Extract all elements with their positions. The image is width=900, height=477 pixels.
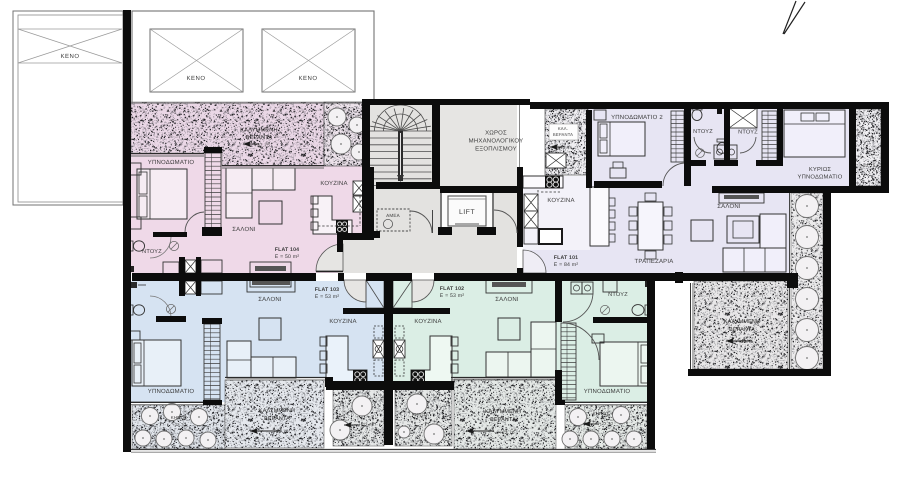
svg-text:ΥΠΝΟΔΩΜΑΤΙΟ: ΥΠΝΟΔΩΜΑΤΙΟ (584, 388, 631, 395)
svg-text:E = 50 m²: E = 50 m² (275, 254, 300, 260)
svg-text:ΝΤΟΥΖ: ΝΤΟΥΖ (608, 292, 628, 298)
svg-text:ΚΟΥΖΙΝΑ: ΚΟΥΖΙΝΑ (547, 197, 574, 204)
svg-text:ΒΕΡΑΝΤΑ: ΒΕΡΑΝΤΑ (264, 416, 290, 422)
svg-text:ΝΤΟΥΖ: ΝΤΟΥΖ (738, 130, 758, 136)
svg-text:LIFT: LIFT (459, 209, 475, 216)
svg-text:ΣΑΛΟΝΙ: ΣΑΛΟΝΙ (258, 296, 282, 303)
svg-text:ΣΑΛΟΝΙ: ΣΑΛΟΝΙ (717, 203, 741, 210)
svg-text:ΒΕΡΑΝΤΑ: ΒΕΡΑΝΤΑ (490, 417, 516, 423)
svg-text:ΚΑΛ.: ΚΑΛ. (558, 126, 568, 131)
svg-text:ΝΤΟΥΖ: ΝΤΟΥΖ (693, 129, 713, 135)
svg-text:ΒΕΡΑΝΤΑ: ΒΕΡΑΝΤΑ (729, 327, 755, 333)
svg-text:FLAT 104: FLAT 104 (275, 247, 300, 253)
svg-text:FLAT 103: FLAT 103 (315, 287, 340, 293)
svg-text:ΥΠΝΟΔΩΜΑΤΙΟ: ΥΠΝΟΔΩΜΑΤΙΟ (148, 159, 195, 166)
svg-text:ΚΑΛΥΜΜΕΝΗ: ΚΑΛΥΜΜΕΝΗ (485, 409, 521, 415)
svg-text:+22.70: +22.70 (360, 422, 375, 427)
svg-text:ΣΑΛΟΝΙ: ΣΑΛΟΝΙ (495, 296, 519, 303)
svg-text:KENO: KENO (186, 75, 205, 82)
svg-text:ΚΟΥΖΙΝΑ: ΚΟΥΖΙΝΑ (320, 180, 347, 187)
svg-text:ΒΕΡΑΝΤΑ: ΒΕΡΑΝΤΑ (246, 135, 273, 141)
svg-text:+22.75: +22.75 (861, 163, 876, 168)
svg-text:FLAT 102: FLAT 102 (440, 286, 465, 292)
svg-text:E = 84 m²: E = 84 m² (554, 262, 579, 268)
svg-text:KENO: KENO (60, 53, 79, 60)
svg-text:ΥΠΝΟΔΩΜΑΤΙΟ: ΥΠΝΟΔΩΜΑΤΙΟ (148, 388, 195, 395)
svg-text:ΚΟΥΖΙΝΑ: ΚΟΥΖΙΝΑ (414, 318, 441, 325)
svg-text:+22.75: +22.75 (558, 145, 573, 150)
svg-text:ΜΗΧΑΝΟΛΟΓΙΚΟΥ: ΜΗΧΑΝΟΛΟΓΙΚΟΥ (469, 138, 524, 145)
svg-text:FLAT 101: FLAT 101 (554, 255, 579, 261)
svg-text:+22.70: +22.70 (273, 429, 289, 434)
svg-text:KENO: KENO (298, 75, 317, 82)
svg-text:+22.70: +22.70 (499, 430, 515, 435)
svg-text:+22.75: +22.75 (254, 143, 270, 149)
svg-text:ΚΗΠΟΣ: ΚΗΠΟΣ (412, 412, 428, 417)
svg-text:+22.75: +22.75 (738, 339, 754, 344)
svg-text:ΝΤΟΥΖ: ΝΤΟΥΖ (142, 249, 162, 255)
svg-text:ΥΠΝΟΔΩΜΑΤΙΟ 2: ΥΠΝΟΔΩΜΑΤΙΟ 2 (611, 114, 663, 121)
svg-text:+22.70: +22.70 (599, 421, 614, 426)
svg-text:ΚΥΡΙΩΣ: ΚΥΡΙΩΣ (809, 166, 832, 173)
svg-text:ΚΑΛΥΜΜΕΝΗ: ΚΑΛΥΜΜΕΝΗ (259, 408, 295, 414)
svg-text:ΚΟΥΖΙΝΑ: ΚΟΥΖΙΝΑ (329, 318, 356, 325)
svg-text:ΚΑΛΥΜΜΕΝΗ: ΚΑΛΥΜΜΕΝΗ (724, 319, 760, 325)
svg-text:ΥΠΝΟΔΩΜΑΤΙΟ: ΥΠΝΟΔΩΜΑΤΙΟ (798, 174, 843, 181)
svg-text:ΒΕΡΑΝΤΑ: ΒΕΡΑΝΤΑ (553, 132, 573, 137)
svg-text:ΤΡΑΠΕΖΑΡΙΑ: ΤΡΑΠΕΖΑΡΙΑ (635, 258, 674, 265)
svg-text:ΚΗΠΟΣ: ΚΗΠΟΣ (171, 415, 187, 420)
svg-text:ΕΞΟΠΛΙΣΜΟΥ: ΕΞΟΠΛΙΣΜΟΥ (475, 146, 517, 153)
svg-text:E = 53 m²: E = 53 m² (315, 294, 340, 300)
svg-text:ΑΜΕΑ: ΑΜΕΑ (386, 213, 401, 218)
svg-text:ΚΗΠΟΣ: ΚΗΠΟΣ (593, 411, 609, 416)
svg-text:E = 53 m²: E = 53 m² (440, 293, 465, 299)
svg-text:+22.70: +22.70 (172, 422, 187, 427)
svg-text:ΚΑΛΥΜΜΕΝΗ: ΚΑΛΥΜΜΕΝΗ (240, 128, 277, 134)
svg-text:ΧΩΡΟΣ: ΧΩΡΟΣ (485, 130, 507, 137)
svg-text:ΣΑΛΟΝΙ: ΣΑΛΟΝΙ (232, 226, 256, 233)
